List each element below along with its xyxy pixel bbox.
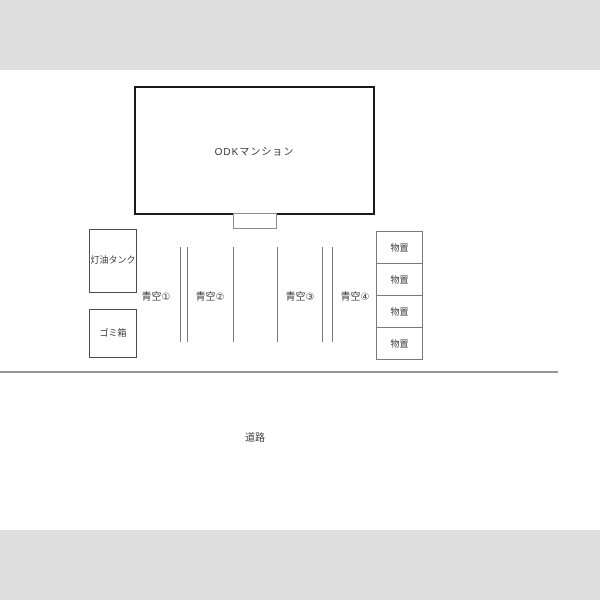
parking-divider-line xyxy=(233,247,234,342)
parking-space-label-1: 青空① xyxy=(142,288,171,303)
parking-divider-line xyxy=(277,247,278,342)
kerosene-tank-label: 灯油タンク xyxy=(90,256,135,266)
road-label: 道路 xyxy=(245,429,265,444)
parking-space-label-2: 青空② xyxy=(196,288,225,303)
building-odk-mansion: ODKマンション xyxy=(134,86,375,213)
parking-divider-line xyxy=(332,247,333,342)
building-bottom-border-right xyxy=(277,213,375,215)
storage-shed-box: 物置 xyxy=(376,263,423,296)
parking-space-label-3: 青空③ xyxy=(286,288,315,303)
parking-divider-line xyxy=(322,247,323,342)
trash-box-label: ゴミ箱 xyxy=(99,329,126,339)
storage-shed-label: 物置 xyxy=(390,273,408,286)
parking-space-label-4: 青空④ xyxy=(341,288,370,303)
parking-divider-line xyxy=(187,247,188,342)
building-entrance-notch xyxy=(233,213,277,229)
kerosene-tank-box: 灯油タンク xyxy=(89,229,137,293)
storage-shed-box: 物置 xyxy=(376,295,423,328)
storage-shed-box: 物置 xyxy=(376,231,423,264)
top-letterbox-bar xyxy=(0,0,600,70)
building-label: ODKマンション xyxy=(215,143,295,158)
storage-shed-label: 物置 xyxy=(390,305,408,318)
building-bottom-border-left xyxy=(134,213,233,215)
road-boundary-line xyxy=(0,371,558,373)
parking-divider-line xyxy=(180,247,181,342)
bottom-letterbox-bar xyxy=(0,530,600,600)
storage-shed-label: 物置 xyxy=(390,337,408,350)
site-plan-canvas: ODKマンション 灯油タンク ゴミ箱 青空① 青空② 青空③ 青空④ 物置 物置… xyxy=(0,0,600,600)
storage-shed-label: 物置 xyxy=(390,241,408,254)
trash-box: ゴミ箱 xyxy=(89,309,137,358)
storage-shed-box: 物置 xyxy=(376,327,423,360)
